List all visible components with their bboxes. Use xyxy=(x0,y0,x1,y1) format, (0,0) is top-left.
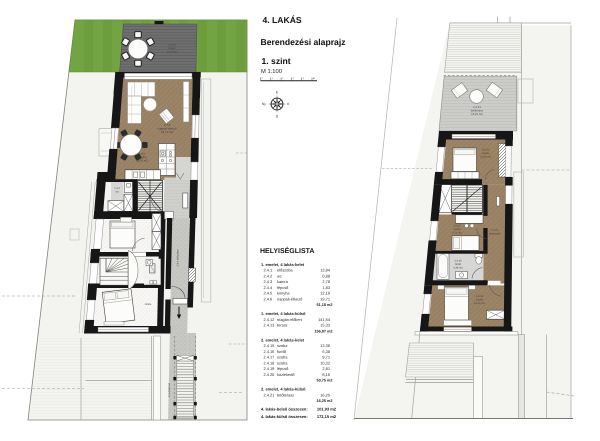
svg-text:12,19 m2: 12,19 m2 xyxy=(136,159,148,163)
svg-text:É: É xyxy=(276,90,278,94)
svg-text:19,71 m2: 19,71 m2 xyxy=(161,130,173,134)
svg-text:HELYISÉGLISTA: HELYISÉGLISTA xyxy=(260,246,314,255)
svg-text:4. LAKÁS: 4. LAKÁS xyxy=(263,15,302,25)
svg-text:2.4.15: 2.4.15 xyxy=(264,343,275,348)
svg-text:9,71: 9,71 xyxy=(322,355,330,360)
svg-text:2.4.1 előszoba: 2.4.1 előszoba xyxy=(177,249,180,266)
svg-text:9,71 m2: 9,71 m2 xyxy=(452,231,462,234)
svg-text:2,81: 2,81 xyxy=(322,366,330,371)
svg-text:2.4.17: 2.4.17 xyxy=(264,355,275,360)
svg-text:1. emelet, 4 lakás-kelet: 1. emelet, 4 lakás-kelet xyxy=(261,262,305,267)
svg-text:15,33 m2: 15,33 m2 xyxy=(167,51,178,54)
svg-text:2.4.18: 2.4.18 xyxy=(264,360,275,365)
svg-text:0,88: 0,88 xyxy=(322,273,330,278)
svg-text:1. szint: 1. szint xyxy=(262,56,291,66)
svg-text:2.4.1: 2.4.1 xyxy=(264,268,273,273)
svg-text:6,38: 6,38 xyxy=(322,349,330,354)
svg-text:8,16: 8,16 xyxy=(322,372,330,377)
svg-text:lépcső: lépcső xyxy=(277,285,288,290)
svg-text:1,83: 1,83 xyxy=(322,285,330,290)
svg-text:Ny: Ny xyxy=(262,102,266,106)
svg-text:konyha: konyha xyxy=(277,291,290,296)
svg-text:16,25: 16,25 xyxy=(320,393,330,398)
svg-text:2.4.3: 2.4.3 xyxy=(264,279,273,284)
svg-text:4. lakás-külső összesen:: 4. lakás-külső összesen: xyxy=(261,414,308,419)
svg-text:12,19: 12,19 xyxy=(320,291,330,296)
svg-text:wc: wc xyxy=(277,273,282,278)
svg-text:2. emelet, 4 lakás-külső: 2. emelet, 4 lakás-külső xyxy=(261,387,306,392)
svg-text:51,18 m2: 51,18 m2 xyxy=(316,303,332,307)
svg-text:Berendezési alaprajz: Berendezési alaprajz xyxy=(261,37,346,47)
svg-text:10,32: 10,32 xyxy=(320,360,330,365)
svg-text:2.4.13: 2.4.13 xyxy=(264,323,275,328)
svg-text:2.4.4: 2.4.4 xyxy=(264,285,273,290)
svg-text:13,94: 13,94 xyxy=(320,268,331,273)
svg-text:2.4.6: 2.4.6 xyxy=(264,296,273,301)
svg-text:szoba: szoba xyxy=(277,360,288,365)
svg-text:2.4.20: 2.4.20 xyxy=(264,372,276,377)
svg-text:15,33: 15,33 xyxy=(320,323,330,328)
svg-text:13,36 m2: 13,36 m2 xyxy=(480,155,491,158)
svg-text:156,87 m2: 156,87 m2 xyxy=(314,329,332,333)
svg-text:172,15 m2: 172,15 m2 xyxy=(317,414,337,419)
svg-text:2.4.2: 2.4.2 xyxy=(264,273,273,278)
svg-text:6,38 m2: 6,38 m2 xyxy=(453,267,463,270)
svg-text:kamra: kamra xyxy=(277,279,289,284)
svg-text:m: m xyxy=(313,77,315,80)
svg-text:szoba: szoba xyxy=(145,303,152,306)
svg-text:M 1:100: M 1:100 xyxy=(261,68,282,75)
svg-text:közlekedő: közlekedő xyxy=(277,372,295,377)
svg-text:2.4.4 lépcső: 2.4.4 lépcső xyxy=(168,382,171,397)
svg-text:2,78: 2,78 xyxy=(322,279,330,284)
svg-text:2.4.12: 2.4.12 xyxy=(264,317,275,322)
svg-text:magán-előkert: magán-előkert xyxy=(277,317,303,322)
svg-text:19,71: 19,71 xyxy=(320,296,330,301)
svg-text:nappali-étkező: nappali-étkező xyxy=(277,296,302,301)
svg-text:16,25 m2: 16,25 m2 xyxy=(316,399,332,403)
svg-text:fürdő: fürdő xyxy=(277,349,286,354)
svg-text:2.4.5: 2.4.5 xyxy=(264,291,273,296)
svg-text:tetőterasz: tetőterasz xyxy=(277,393,294,398)
svg-text:terasz: terasz xyxy=(277,323,288,328)
svg-text:2. emelet, 4 lakás-kelet: 2. emelet, 4 lakás-kelet xyxy=(261,337,305,342)
svg-text:előszoba: előszoba xyxy=(277,268,293,273)
svg-text:2.4.19: 2.4.19 xyxy=(264,366,275,371)
svg-text:szoba: szoba xyxy=(277,343,288,348)
svg-text:101,93 m2: 101,93 m2 xyxy=(317,407,337,412)
svg-text:közlekedő: közlekedő xyxy=(489,232,501,235)
svg-text:4. lakás-belső összesen:: 4. lakás-belső összesen: xyxy=(261,407,308,412)
svg-text:2.4.16: 2.4.16 xyxy=(264,349,275,354)
svg-text:13,36: 13,36 xyxy=(320,343,330,348)
svg-text:141,54: 141,54 xyxy=(318,317,331,322)
svg-text:2.4.21: 2.4.21 xyxy=(264,393,275,398)
svg-text:lépcső: lépcső xyxy=(277,366,288,371)
svg-text:16,25 m2: 16,25 m2 xyxy=(471,112,483,116)
svg-text:szoba: szoba xyxy=(277,355,288,360)
svg-text:10,32 m2: 10,32 m2 xyxy=(474,302,485,305)
svg-text:50,75 m2: 50,75 m2 xyxy=(316,379,332,383)
svg-text:1. emelet, 4 lakás-külső: 1. emelet, 4 lakás-külső xyxy=(261,311,306,316)
